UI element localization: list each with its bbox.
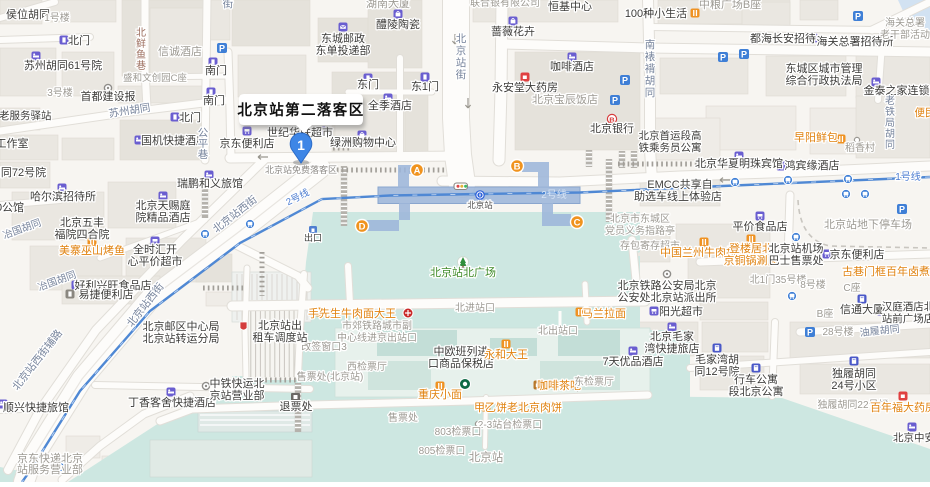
svg-text:便民: 便民 xyxy=(915,106,930,119)
svg-text:铁乘务员公寓: 铁乘务员公寓 xyxy=(639,141,702,154)
svg-text:京站营业部: 京站营业部 xyxy=(210,388,265,402)
svg-text:汉庭酒店北: 汉庭酒店北 xyxy=(882,300,930,313)
svg-text:信通大厦: 信通大厦 xyxy=(840,302,884,316)
svg-text:7天优品酒店: 7天优品酒店 xyxy=(602,354,663,368)
svg-text:P: P xyxy=(807,327,813,337)
svg-text:站前广场店: 站前广场店 xyxy=(882,312,930,325)
svg-text:鸿宾缘酒店: 鸿宾缘酒店 xyxy=(785,158,840,172)
svg-text:百年福大药房: 百年福大药房 xyxy=(870,400,930,414)
svg-text:易捷便利店: 易捷便利店 xyxy=(79,287,134,301)
svg-text:北京中安: 北京中安 xyxy=(893,431,930,444)
svg-text:1号楼: 1号楼 xyxy=(44,11,70,24)
svg-text:8号楼: 8号楼 xyxy=(800,278,826,291)
svg-text:首都建设报: 首都建设报 xyxy=(81,89,136,103)
svg-text:永和大王: 永和大王 xyxy=(484,347,528,361)
svg-text:100种小生活: 100种小生活 xyxy=(625,6,687,20)
svg-text:手先生牛肉面大王: 手先生牛肉面大王 xyxy=(308,306,396,320)
svg-text:毛家湾胡: 毛家湾胡 xyxy=(695,352,739,366)
svg-text:重庆小面: 重庆小面 xyxy=(418,387,462,401)
svg-text:醴陵陶瓷: 醴陵陶瓷 xyxy=(376,17,420,31)
svg-text:北: 北 xyxy=(456,33,467,45)
svg-text:退票处: 退票处 xyxy=(280,400,313,413)
svg-text:独履胡同: 独履胡同 xyxy=(832,366,876,380)
svg-text:2号线: 2号线 xyxy=(541,188,567,201)
svg-text:京东便利店: 京东便利店 xyxy=(220,136,275,150)
svg-text:北京站地下停车场: 北京站地下停车场 xyxy=(824,217,912,231)
svg-text:北1门35号楼: 北1门35号楼 xyxy=(750,273,807,286)
svg-text:B座: B座 xyxy=(817,307,834,320)
svg-text:北出站口: 北出站口 xyxy=(538,324,578,337)
svg-text:老: 老 xyxy=(885,94,895,107)
svg-text:北京站: 北京站 xyxy=(469,450,504,464)
svg-text:售票处(北京站): 售票处(北京站) xyxy=(297,370,364,383)
svg-text:永安堂大药房: 永安堂大药房 xyxy=(492,80,558,94)
svg-text:东门: 东门 xyxy=(357,77,379,91)
svg-text:D: D xyxy=(359,222,366,233)
svg-text:P: P xyxy=(899,204,905,214)
svg-text:心平价超市: 心平价超市 xyxy=(128,254,183,268)
svg-text:信诚酒店: 信诚酒店 xyxy=(158,44,202,58)
svg-text:马兰拉面: 马兰拉面 xyxy=(582,306,626,320)
svg-text:党员义务指路亭: 党员义务指路亭 xyxy=(605,224,675,237)
svg-text:苏州胡同61号院: 苏州胡同61号院 xyxy=(24,58,102,72)
svg-text:胡同72号院: 胡同72号院 xyxy=(0,165,46,179)
svg-text:全季酒店: 全季酒店 xyxy=(368,98,412,112)
svg-text:南门: 南门 xyxy=(205,63,227,77)
svg-text:P: P xyxy=(741,49,747,59)
svg-text:803检票口: 803检票口 xyxy=(435,425,482,438)
svg-text:北京毛家: 北京毛家 xyxy=(650,329,694,343)
svg-text:B: B xyxy=(514,162,521,173)
svg-text:P: P xyxy=(622,75,628,85)
svg-text:北京银行: 北京银行 xyxy=(590,121,634,135)
svg-text:早阳鲜包: 早阳鲜包 xyxy=(794,130,838,144)
svg-text:美寨巫山烤鱼: 美寨巫山烤鱼 xyxy=(59,243,125,257)
svg-text:湾快捷旅店: 湾快捷旅店 xyxy=(645,341,700,355)
svg-text:P: P xyxy=(855,11,861,21)
svg-text:中心线进京出站口: 中心线进京出站口 xyxy=(337,331,417,344)
svg-text:P: P xyxy=(720,52,726,62)
svg-text:胡: 胡 xyxy=(645,74,656,87)
svg-text:北京铁路公安局北京: 北京铁路公安局北京 xyxy=(618,278,717,292)
svg-text:北京站北广场: 北京站北广场 xyxy=(430,265,496,279)
svg-text:海关总署: 海关总署 xyxy=(885,16,925,29)
svg-text:养老服务驿站: 养老服务驿站 xyxy=(0,109,52,122)
svg-text:北京邮区中心局: 北京邮区中心局 xyxy=(143,319,220,333)
svg-text:C: C xyxy=(574,218,581,229)
svg-text:古巷门框百年卤煮: 古巷门框百年卤煮 xyxy=(842,264,930,278)
svg-text:中粮广场B座: 中粮广场B座 xyxy=(699,0,761,11)
svg-text:巷: 巷 xyxy=(198,149,209,161)
svg-text:甲乙饼老北京肉饼: 甲乙饼老北京肉饼 xyxy=(474,400,562,414)
svg-text:市郊铁路城市副: 市郊铁路城市副 xyxy=(342,319,412,332)
svg-text:北京站: 北京站 xyxy=(467,200,493,210)
svg-text:哈尔滨招待所: 哈尔滨招待所 xyxy=(30,189,96,203)
svg-text:北京站转运分局: 北京站转运分局 xyxy=(143,331,220,345)
svg-text:同: 同 xyxy=(885,139,895,151)
svg-text:助选车线上体验店: 助选车线上体验店 xyxy=(634,189,722,203)
svg-text:巷: 巷 xyxy=(136,60,146,72)
svg-text:蔷薇花卉: 蔷薇花卉 xyxy=(491,25,535,38)
svg-text:P: P xyxy=(219,43,225,53)
svg-text:段北京公寓: 段北京公寓 xyxy=(729,384,784,398)
svg-text:湖南大厦: 湖南大厦 xyxy=(366,0,410,10)
svg-text:2-3站台检票口: 2-3站台检票口 xyxy=(478,418,542,431)
svg-text:老干部活动: 老干部活动 xyxy=(880,28,930,41)
svg-text:出口: 出口 xyxy=(304,232,322,243)
svg-text:北进站口: 北进站口 xyxy=(455,301,495,314)
svg-text:中欧班列进: 中欧班列进 xyxy=(434,344,489,358)
svg-text:北京市东城区: 北京市东城区 xyxy=(610,212,670,225)
svg-text:胡: 胡 xyxy=(885,127,895,140)
svg-text:铁: 铁 xyxy=(885,105,895,118)
svg-text:北京站机场: 北京站机场 xyxy=(769,241,824,255)
svg-text:0公馆: 0公馆 xyxy=(0,200,24,214)
svg-text:丁香客舍快捷酒店: 丁香客舍快捷酒店 xyxy=(128,395,216,409)
svg-text:街: 街 xyxy=(223,0,234,10)
svg-text:北京天赐庭: 北京天赐庭 xyxy=(136,198,191,212)
svg-text:东单投递部: 东单投递部 xyxy=(316,43,371,57)
svg-text:中铁快运北: 中铁快运北 xyxy=(210,377,265,390)
svg-text:售票处: 售票处 xyxy=(388,411,418,424)
svg-text:公安处北京站派出所: 公安处北京站派出所 xyxy=(618,290,717,304)
svg-text:综合行政执法局: 综合行政执法局 xyxy=(786,73,863,87)
svg-text:工作室: 工作室 xyxy=(0,136,29,150)
svg-text:28号楼: 28号楼 xyxy=(822,325,853,338)
svg-text:鱼: 鱼 xyxy=(136,48,146,61)
svg-text:东城邮政: 东城邮政 xyxy=(321,31,365,45)
svg-text:京: 京 xyxy=(456,44,467,57)
svg-text:东1门: 东1门 xyxy=(411,79,439,93)
svg-text:24号小区: 24号小区 xyxy=(831,379,876,392)
svg-text:裱: 裱 xyxy=(645,51,656,63)
svg-text:3号楼: 3号楼 xyxy=(47,86,73,99)
svg-text:全时汇开: 全时汇开 xyxy=(133,242,177,256)
svg-text:805检票口: 805检票口 xyxy=(419,444,466,457)
svg-text:站服务营业部: 站服务营业部 xyxy=(17,462,83,476)
svg-text:北京站第二落客区: 北京站第二落客区 xyxy=(237,101,364,119)
svg-text:恒基中心: 恒基中心 xyxy=(548,0,592,13)
svg-text:北: 北 xyxy=(136,27,146,39)
svg-text:院精品酒店: 院精品酒店 xyxy=(136,210,191,224)
svg-text:绿洲购物中心: 绿洲购物中心 xyxy=(330,135,396,149)
svg-text:北门: 北门 xyxy=(68,33,90,47)
svg-text:南: 南 xyxy=(645,38,656,51)
svg-text:P: P xyxy=(612,95,618,105)
svg-text:1号线: 1号线 xyxy=(895,170,921,183)
svg-text:顺兴快捷旅馆: 顺兴快捷旅馆 xyxy=(3,400,69,414)
svg-text:巴士售票处: 巴士售票处 xyxy=(769,253,824,267)
svg-text:登楼居北: 登楼居北 xyxy=(729,241,773,255)
svg-text:同12号院: 同12号院 xyxy=(694,364,739,378)
svg-text:行车公寓: 行车公寓 xyxy=(734,372,778,386)
svg-text:北京五丰: 北京五丰 xyxy=(60,215,104,229)
svg-text:京东便利店: 京东便利店 xyxy=(830,247,885,261)
svg-text:稻香村: 稻香村 xyxy=(845,141,875,154)
svg-text:都海长安招待: 都海长安招待 xyxy=(750,31,816,45)
svg-text:金泰之家连锁旅: 金泰之家连锁旅 xyxy=(864,83,930,97)
svg-text:盛和文创园C座: 盛和文创园C座 xyxy=(123,72,187,84)
svg-text:1: 1 xyxy=(297,137,305,153)
svg-text:C座: C座 xyxy=(843,281,860,294)
svg-text:街: 街 xyxy=(456,68,467,81)
svg-text:改签窗口3: 改签窗口3 xyxy=(301,340,347,353)
svg-text:A: A xyxy=(414,166,421,177)
svg-text:北京站出: 北京站出 xyxy=(258,318,302,332)
svg-text:北京华夏明珠宾馆: 北京华夏明珠宾馆 xyxy=(695,156,783,170)
svg-text:瑞鹏和义旅馆: 瑞鹏和义旅馆 xyxy=(177,176,243,190)
svg-text:咖啡酒店: 咖啡酒店 xyxy=(550,59,594,73)
svg-text:EMCC共享自: EMCC共享自 xyxy=(647,177,712,191)
svg-text:租车调度站: 租车调度站 xyxy=(253,330,308,344)
svg-text:褙: 褙 xyxy=(645,62,656,75)
svg-text:局: 局 xyxy=(885,117,895,129)
svg-text:站: 站 xyxy=(456,56,467,69)
svg-text:北京宝辰饭店: 北京宝辰饭店 xyxy=(532,92,598,106)
svg-text:北门: 北门 xyxy=(179,110,201,124)
svg-text:东检票厅: 东检票厅 xyxy=(574,375,614,388)
svg-text:福院四合院: 福院四合院 xyxy=(55,227,110,241)
svg-text:京东快递北京: 京东快递北京 xyxy=(17,451,83,465)
svg-text:联合银有限公司: 联合银有限公司 xyxy=(470,0,540,9)
svg-text:南门: 南门 xyxy=(203,93,225,107)
svg-text:同: 同 xyxy=(645,87,656,99)
svg-text:北京站免费落客区: 北京站免费落客区 xyxy=(265,164,337,175)
svg-text:平价食品店: 平价食品店 xyxy=(733,219,788,233)
svg-text:阳光超市: 阳光超市 xyxy=(659,304,703,318)
svg-text:鲜: 鲜 xyxy=(136,37,146,50)
svg-text:北京首运段高: 北京首运段高 xyxy=(639,129,702,142)
svg-text:东城区城市管理: 东城区城市管理 xyxy=(786,61,863,75)
